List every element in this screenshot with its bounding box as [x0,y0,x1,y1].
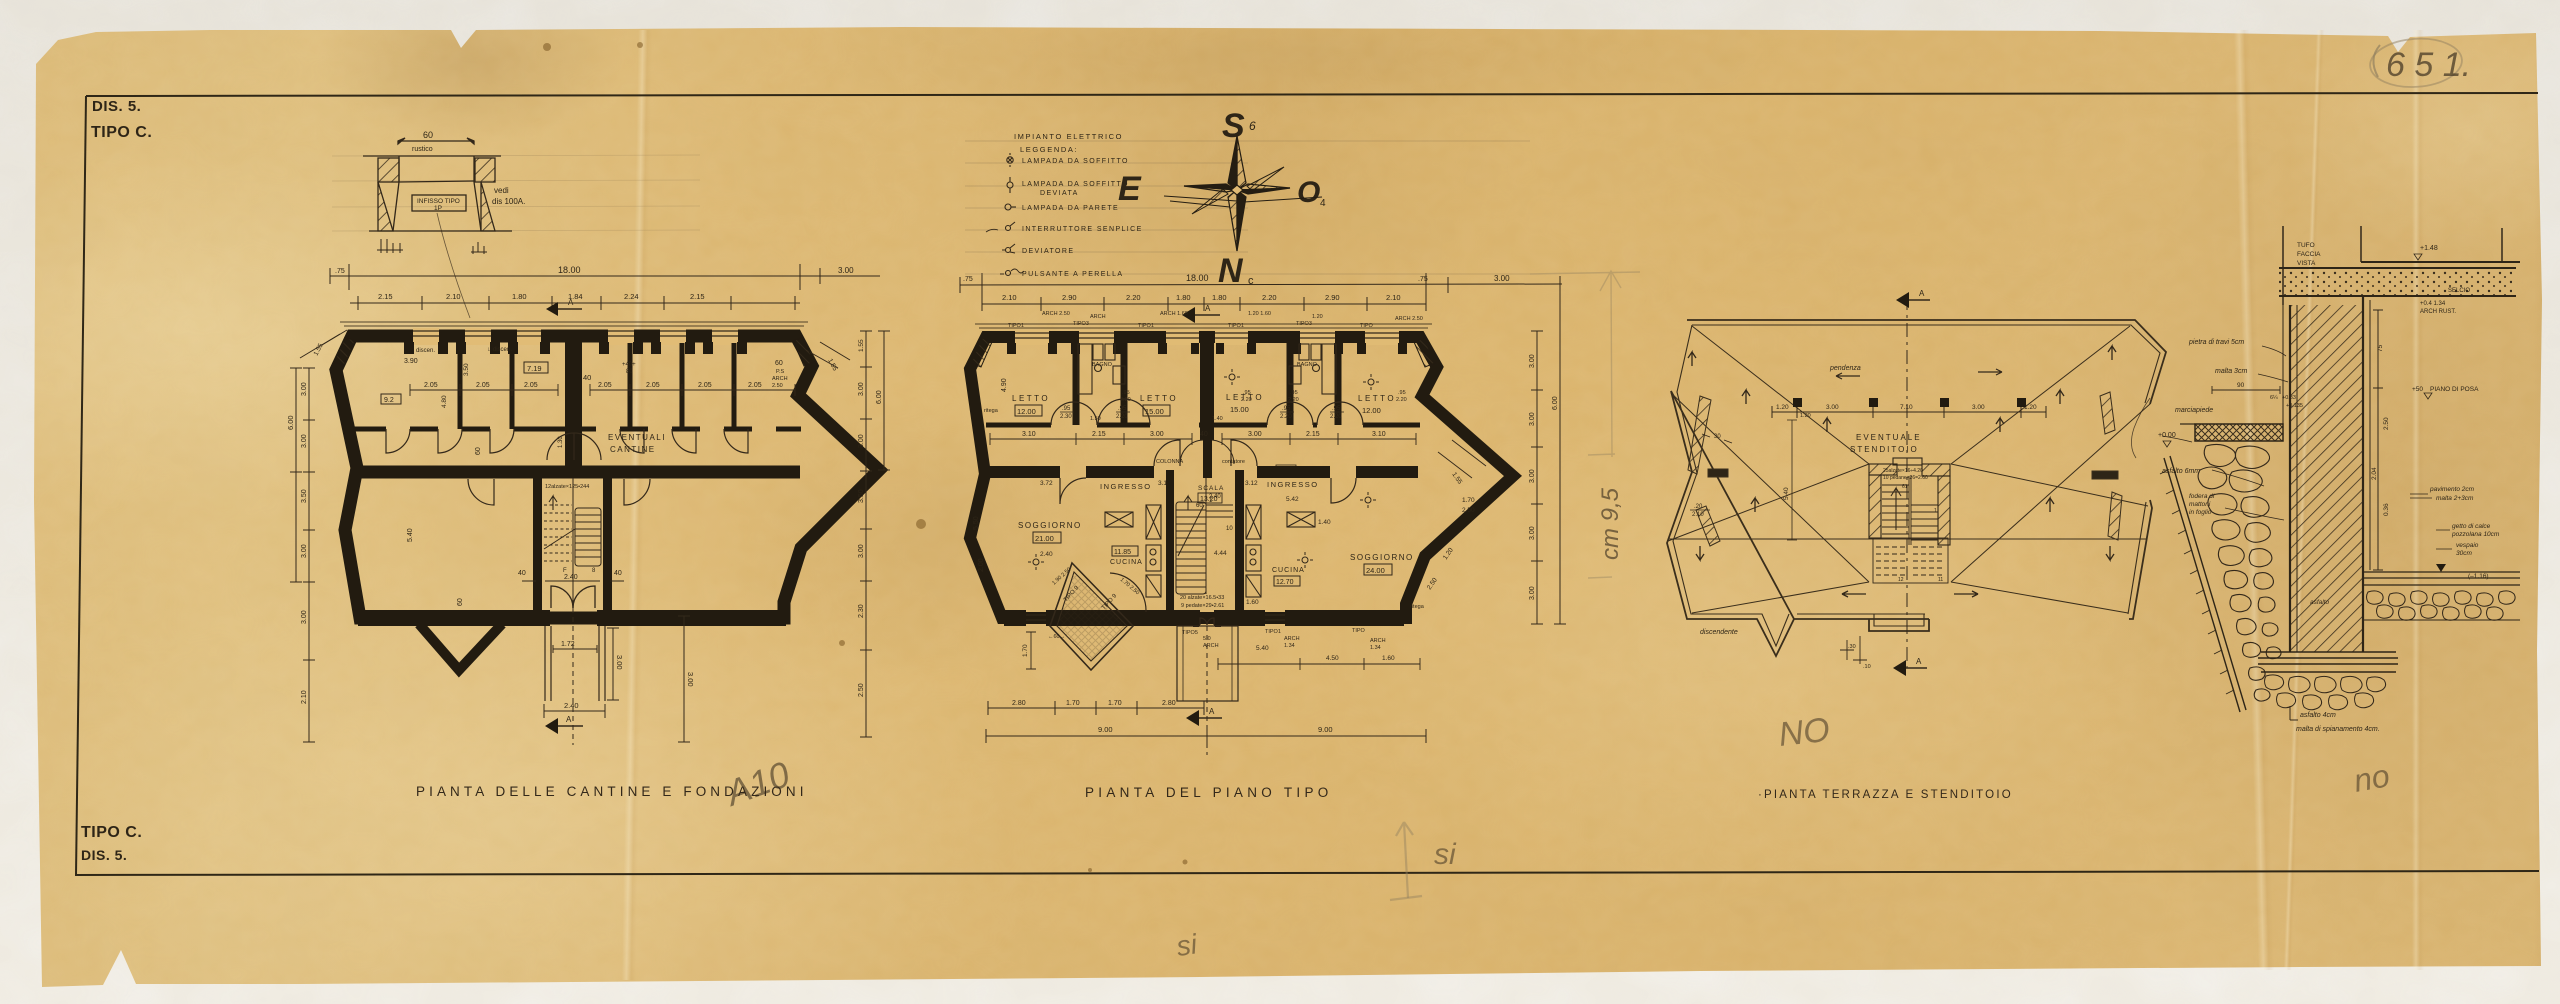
svg-text:←60→: ←60→ [1048,634,1065,640]
svg-text:2.20: 2.20 [1280,414,1292,420]
svg-text:2.20: 2.20 [1120,397,1131,403]
svg-text:(–1.16): (–1.16) [2468,573,2489,580]
svg-text:3.00: 3.00 [1248,431,1262,438]
svg-text:CUCINA: CUCINA [1272,567,1305,574]
svg-text:ARCH: ARCH [1203,643,1219,649]
svg-text:5.40: 5.40 [1256,645,1269,652]
svg-text:getto di calce: getto di calce [2452,523,2491,530]
svg-text:12.00: 12.00 [1362,406,1381,415]
svg-text:2.50: 2.50 [772,383,783,389]
svg-text:1.20: 1.20 [1800,413,1811,419]
svg-text:pavimento 2cm: pavimento 2cm [2429,486,2475,493]
svg-text:2.40: 2.40 [564,574,578,581]
svg-text:2.50: 2.50 [858,683,865,697]
svg-text:2.90: 2.90 [1325,293,1340,302]
svg-text:LETTO: LETTO [1012,394,1050,403]
svg-text:5.42: 5.42 [1286,496,1299,503]
svg-text:1.80: 1.80 [1176,293,1191,302]
svg-text:3.00: 3.00 [1150,431,1164,438]
svg-text:E: E [1118,170,1142,208]
svg-text:6.00: 6.00 [286,415,295,430]
svg-text:3.00: 3.00 [615,655,624,670]
svg-text:fodera di: fodera di [2189,493,2215,500]
svg-text:2.15: 2.15 [690,292,705,301]
svg-text:CUCINA: CUCINA [1110,559,1143,566]
svg-text:·PIANTA TERRAZZA E STENDITOIO: ·PIANTA TERRAZZA E STENDITOIO [1758,789,2013,801]
svg-text:3.90: 3.90 [404,358,418,365]
svg-text:1.20 1.60: 1.20 1.60 [1248,311,1271,317]
svg-text:40: 40 [518,570,526,577]
svg-text:60: 60 [457,598,464,606]
svg-text:2.10: 2.10 [301,690,308,704]
svg-text:2.90: 2.90 [1062,293,1077,302]
svg-text:15.00: 15.00 [1145,407,1164,416]
svg-text:2.80: 2.80 [1162,700,1176,707]
svg-text:TIPO C.: TIPO C. [81,824,142,841]
svg-text:1.20: 1.20 [1312,314,1323,320]
svg-text:pendenza: pendenza [1829,365,1861,372]
svg-text:4.90: 4.90 [1001,378,1008,392]
svg-text:.95: .95 [1332,406,1341,412]
svg-text:1.20: 1.20 [1776,404,1789,411]
svg-text:asfalto: asfalto [2310,599,2330,606]
svg-text:LETTO: LETTO [1358,394,1396,403]
svg-text:0.36: 0.36 [2383,503,2390,516]
svg-text:A: A [1919,289,1925,298]
svg-text:2.05: 2.05 [748,382,762,389]
svg-text:TIPO5: TIPO5 [1182,630,1198,636]
svg-text:.75: .75 [963,276,973,283]
svg-text:10 pedane×26=2.60: 10 pedane×26=2.60 [1883,475,1928,481]
svg-text:3.00: 3.00 [1529,469,1536,483]
svg-text:6.00: 6.00 [1552,396,1559,410]
svg-text:+40+: +40+ [622,362,636,368]
svg-text:F: F [563,568,567,574]
svg-text:.30: .30 [1848,644,1856,650]
svg-text:FACCIA: FACCIA [2297,251,2321,258]
svg-text:pietra di travi 5cm: pietra di travi 5cm [2188,339,2244,346]
svg-text:3.10: 3.10 [1022,431,1036,438]
svg-text:60: 60 [775,360,783,367]
svg-text:PULSANTE A PERELLA: PULSANTE A PERELLA [1022,271,1123,278]
svg-text:5.40: 5.40 [1783,487,1790,500]
svg-text:1.34: 1.34 [1370,645,1381,651]
svg-text:4.44: 4.44 [1214,550,1227,557]
svg-text:2.05: 2.05 [598,382,612,389]
svg-text:2.05: 2.05 [476,382,490,389]
svg-text:60: 60 [1196,503,1203,509]
svg-text:A: A [566,715,572,724]
svg-text:discen.: discen. [416,348,435,354]
svg-text:1.70: 1.70 [1108,700,1122,707]
svg-text:2.05: 2.05 [524,382,538,389]
svg-text:.10: .10 [1863,664,1871,670]
svg-text:2.00: 2.00 [978,558,985,572]
svg-text:2.15: 2.15 [1306,431,1320,438]
svg-text:1: 1 [1934,508,1937,514]
svg-text:12.00: 12.00 [1017,407,1036,416]
svg-text:1.34: 1.34 [1284,643,1295,649]
svg-text:6.00: 6.00 [876,390,883,404]
svg-text:60: 60 [475,447,482,455]
svg-text:3.10: 3.10 [1372,431,1386,438]
svg-text:ARCH 2.50: ARCH 2.50 [1395,316,1423,322]
svg-text:1.70: 1.70 [1462,497,1475,504]
svg-text:IMPIANTO ELETTRICO: IMPIANTO ELETTRICO [1014,132,1123,141]
svg-text:3.00: 3.00 [1972,404,1985,411]
svg-text:A: A [1205,304,1211,313]
svg-text:BAGNO: BAGNO [1092,362,1113,368]
svg-text:9.00: 9.00 [1318,725,1333,734]
svg-text:DIS. 5.: DIS. 5. [81,847,127,863]
svg-text:.75: .75 [335,268,345,275]
svg-text:EVENTUALE: EVENTUALE [1856,433,1922,442]
svg-text:SELCIO: SELCIO [2448,288,2470,294]
svg-text:9.00: 9.00 [1098,725,1113,734]
svg-text:2.10: 2.10 [1692,512,1704,518]
svg-text:15.00: 15.00 [1230,405,1249,414]
svg-text:2.30: 2.30 [1060,414,1072,420]
svg-text:ARCH RUST.: ARCH RUST. [2420,309,2456,315]
svg-text:3.50: 3.50 [463,363,470,376]
svg-text:rustico: rustico [412,146,433,153]
svg-text:SCALA: SCALA [1198,485,1224,492]
svg-text:pozzolana 10cm: pozzolana 10cm [2451,531,2500,538]
svg-text:3.00: 3.00 [1529,586,1536,600]
svg-text:S: S [1222,107,1245,145]
svg-text:1.72: 1.72 [561,641,575,648]
svg-text:1.50: 1.50 [1090,416,1101,422]
svg-text:1.30: 1.30 [558,436,564,448]
svg-text:1.20: 1.20 [2024,404,2037,411]
svg-text:25alzate×16÷4.20: 25alzate×16÷4.20 [1883,468,1923,474]
svg-text:2.20: 2.20 [1126,293,1141,302]
svg-text:BAGNO: BAGNO [1297,362,1318,368]
svg-text:2.15: 2.15 [1092,431,1106,438]
svg-text:7.19: 7.19 [527,364,542,373]
svg-text:O: O [1297,176,1320,209]
svg-text:40: 40 [1200,431,1208,438]
svg-text:21.00: 21.00 [1035,534,1054,543]
svg-text:VISTA: VISTA [2297,260,2316,267]
svg-text:3.00: 3.00 [838,266,854,275]
svg-text:2.24: 2.24 [624,292,639,301]
svg-text:malta 3cm: malta 3cm [2215,368,2247,375]
svg-text:cm 9,5: cm 9,5 [1597,487,1624,560]
svg-text:A: A [1209,707,1215,716]
svg-text:si: si [1434,838,1457,871]
svg-text:30cm: 30cm [2456,550,2472,557]
svg-text:2.40: 2.40 [1040,551,1053,558]
svg-text:+0.33: +0.33 [2282,395,2296,401]
svg-text:1.60: 1.60 [1246,599,1259,606]
svg-text:30: 30 [1714,434,1721,440]
svg-text:4: 4 [1320,198,1326,209]
svg-text:3.00: 3.00 [301,610,308,624]
svg-text:1.70: 1.70 [1022,644,1029,657]
svg-text:2.20: 2.20 [1241,397,1252,403]
svg-text:3.12: 3.12 [1245,480,1258,487]
svg-text:ARCH: ARCH [1370,638,1386,644]
svg-text:1.40: 1.40 [1212,416,1223,422]
svg-text:DEVIATA: DEVIATA [1040,190,1079,197]
svg-text:9.2: 9.2 [384,397,394,404]
svg-text:11.85: 11.85 [1114,549,1131,556]
svg-text:asfalto 4cm: asfalto 4cm [2300,712,2336,719]
svg-text:PIANTA DEL PIANO TIPO: PIANTA DEL PIANO TIPO [1085,785,1333,800]
svg-text:TIPO1: TIPO1 [1265,629,1281,635]
svg-text:DIS. 5.: DIS. 5. [92,98,141,115]
svg-text:6 5 1.: 6 5 1. [2386,46,2471,84]
svg-text:3.72: 3.72 [1040,480,1053,487]
svg-text:3.00: 3.00 [1494,274,1510,283]
svg-text:SOGGIORNO: SOGGIORNO [1350,553,1414,562]
svg-text:∟discen.: ∟discen. [487,347,512,353]
svg-text:80: 80 [626,369,633,375]
svg-text:11: 11 [1938,577,1943,583]
svg-text:in foglio: in foglio [2189,509,2212,516]
svg-text:c: c [1248,275,1254,287]
svg-text:1.55: 1.55 [858,339,865,352]
svg-text:2.04: 2.04 [2371,467,2378,480]
svg-text:2.30: 2.30 [858,604,865,618]
svg-text:3.00: 3.00 [1529,354,1536,368]
svg-text:3.00: 3.00 [1529,526,1536,540]
svg-text:TUFO: TUFO [2297,242,2315,249]
svg-text:1.80: 1.80 [512,292,527,301]
svg-text:1.70: 1.70 [1066,700,1080,707]
svg-text:4.50: 4.50 [1326,655,1339,662]
svg-text:3.50: 3.50 [858,489,865,503]
svg-text:malta di spianamento 4cm.: malta di spianamento 4cm. [2296,726,2380,733]
svg-text:2.20: 2.20 [1330,414,1342,420]
svg-text:2.20: 2.20 [1116,414,1128,420]
svg-text:40: 40 [583,373,591,382]
svg-text:1P: 1P [434,205,442,212]
svg-text:3.00: 3.00 [301,544,308,558]
svg-text:.95: .95 [1062,406,1071,412]
svg-text:INTERRUTTORE SENPLICE: INTERRUTTORE SENPLICE [1022,226,1143,233]
svg-text:+1.48: +1.48 [2420,245,2438,252]
svg-text:18.00: 18.00 [1186,273,1209,283]
svg-text:.20: .20 [1694,504,1703,510]
svg-text:2.20: 2.20 [1396,397,1407,403]
svg-text:LAMPADA DA PARETE: LAMPADA DA PARETE [1022,205,1119,212]
svg-text:3.00: 3.00 [301,382,308,396]
svg-text:12alzate×125•244: 12alzate×125•244 [545,484,589,490]
svg-text:malta 2+3cm: malta 2+3cm [2436,495,2474,502]
svg-text:contatore: contatore [1222,459,1245,465]
svg-text:3.00: 3.00 [1529,412,1536,426]
svg-text:N: N [1218,252,1244,290]
svg-text:ARCH: ARCH [1284,636,1300,642]
svg-text:5.50: 5.50 [973,516,980,530]
svg-text:COLONNA: COLONNA [1156,459,1184,465]
svg-text:.95: .95 [1290,390,1298,396]
svg-text:2.40: 2.40 [564,701,579,710]
svg-text:ritega: ritega [984,408,999,414]
svg-text:40: 40 [614,570,622,577]
svg-text:ARCH 1.60: ARCH 1.60 [1160,311,1188,317]
svg-text:SOGGIORNO: SOGGIORNO [1018,521,1082,530]
svg-text:3.00: 3.00 [301,434,308,448]
svg-text:90: 90 [2237,382,2245,389]
svg-text:1.40: 1.40 [1318,519,1331,526]
svg-text:3.00: 3.00 [858,382,865,396]
svg-text:2.20: 2.20 [1288,397,1299,403]
svg-text:STENDITOIO: STENDITOIO [1850,445,1919,454]
svg-text:EVENTUALI: EVENTUALI [608,433,666,442]
svg-text:INGRESSO: INGRESSO [1100,482,1152,491]
svg-text:discendente: discendente [1700,629,1738,636]
svg-text:18.00: 18.00 [558,265,581,275]
svg-text:60: 60 [423,130,433,140]
svg-text:LAMPADA DA SOFFITTO: LAMPADA DA SOFFITTO [1022,181,1129,188]
svg-text:LETTO: LETTO [1140,394,1178,403]
svg-text:2.05: 2.05 [646,382,660,389]
svg-text:2.05: 2.05 [424,382,438,389]
svg-text:2.10: 2.10 [1386,293,1401,302]
svg-text:DEVIATORE: DEVIATORE [1022,248,1074,255]
svg-text:TIPO C.: TIPO C. [91,124,152,141]
svg-text:.95: .95 [1398,390,1406,396]
svg-text:10: 10 [1226,526,1233,532]
svg-text:marciapiede: marciapiede [2175,407,2213,414]
svg-text:24.00: 24.00 [1366,566,1385,575]
svg-text:3.50: 3.50 [301,489,308,503]
svg-text:12.70: 12.70 [1276,579,1294,586]
svg-text:.75: .75 [1418,276,1428,283]
svg-text:ritega: ritega [1410,604,1425,610]
svg-text:2.50: 2.50 [1462,507,1475,514]
svg-text:+50: +50 [2412,386,2423,393]
svg-text:2.20: 2.20 [1262,293,1277,302]
svg-text:1.60: 1.60 [1382,655,1395,662]
svg-text:4.80: 4.80 [441,395,448,408]
svg-text:2.05: 2.05 [698,382,712,389]
svg-text:INGRESSO: INGRESSO [1267,480,1319,489]
svg-text:vedi: vedi [494,186,509,195]
svg-text:2.10: 2.10 [446,292,461,301]
svg-text:.95: .95 [1243,390,1251,396]
svg-text:6: 6 [1249,119,1256,133]
svg-text:CANTINE: CANTINE [610,445,656,454]
svg-text:A: A [1916,657,1922,666]
svg-text:6¼: 6¼ [2270,395,2278,401]
svg-text:ARCH: ARCH [1090,314,1106,320]
svg-text:PIANO DI POSA: PIANO DI POSA [2430,386,2479,393]
svg-text:2.80: 2.80 [1012,700,1026,707]
svg-text:.95: .95 [1122,390,1130,396]
svg-text:3.00: 3.00 [1826,404,1839,411]
svg-text:2.40: 2.40 [1209,494,1221,500]
svg-text:3.00: 3.00 [686,672,695,687]
svg-text:5.40: 5.40 [407,528,414,542]
svg-text:ARCH: ARCH [772,376,788,382]
svg-text:9 pedate×29•2.61: 9 pedate×29•2.61 [1181,603,1224,609]
svg-text:INFISSO TIPO: INFISSO TIPO [417,198,460,205]
svg-text:20 alzate×16.5•33: 20 alzate×16.5•33 [1180,595,1224,601]
svg-text:ARCH 2.50: ARCH 2.50 [1042,311,1070,317]
svg-text:no: no [2351,757,2392,799]
svg-text:LEGGENDA:: LEGGENDA: [1020,145,1078,154]
svg-text:2.15: 2.15 [378,292,393,301]
svg-text:.95: .95 [1118,406,1127,412]
svg-text:12: 12 [1898,577,1904,583]
svg-text:3.00: 3.00 [858,434,865,448]
svg-text:2.10: 2.10 [1002,293,1017,302]
svg-text:3.00: 3.00 [858,544,865,558]
svg-text:P.S: P.S [776,369,784,375]
svg-text:75: 75 [2377,344,2384,352]
svg-text:vespaio: vespaio [2456,542,2479,549]
svg-text:LAMPADA DA SOFFITTO: LAMPADA DA SOFFITTO [1022,158,1129,165]
svg-text:+0.135: +0.135 [2286,403,2303,409]
svg-text:A: A [568,298,574,307]
svg-text:+0.4 1.34: +0.4 1.34 [2420,301,2446,307]
svg-text:.95: .95 [1282,406,1291,412]
svg-text:dis 100A.: dis 100A. [492,197,525,206]
svg-text:TIPO: TIPO [1352,628,1366,634]
svg-text:NO: NO [1777,711,1832,754]
svg-text:2.50: 2.50 [2383,417,2390,430]
svg-text:1.80: 1.80 [1212,293,1227,302]
